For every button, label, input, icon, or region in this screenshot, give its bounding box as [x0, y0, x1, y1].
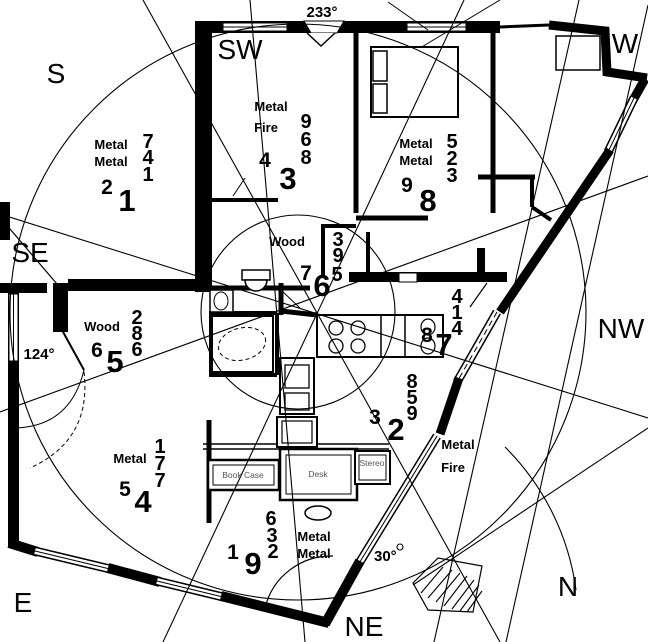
stairs-step-2: [428, 570, 452, 598]
wall-left-upper: [195, 21, 212, 292]
sector-top-right: Metal Metal 5 2 3 9 8: [399, 131, 457, 218]
star-base: 1: [118, 183, 135, 218]
wall-entry-jamb: [53, 283, 68, 332]
compass-w: W: [612, 28, 639, 59]
entry-door-arc-2: [30, 372, 85, 468]
wall-top-thin: [500, 25, 549, 27]
compass-sw: SW: [217, 34, 263, 65]
fridge-door-2: [285, 393, 309, 410]
star-left: 4: [259, 149, 271, 172]
stairs-outline: [413, 558, 482, 612]
compass-e: E: [14, 587, 33, 618]
star-base: 5: [106, 344, 123, 379]
angle-ne: 30°: [374, 548, 397, 565]
stairs-step-3: [436, 573, 460, 602]
element-label: Fire: [441, 460, 465, 475]
star-left: 6: [91, 339, 103, 362]
star-left: 8: [421, 324, 433, 347]
star-stack-3: 4: [451, 318, 463, 340]
wall-wroom-3: [532, 207, 551, 220]
element-label: Fire: [254, 120, 278, 135]
bed-pillow-2: [373, 84, 387, 113]
star-left: 3: [369, 406, 381, 429]
sector-bottom-left: Metal 1 7 7 5 4: [113, 436, 165, 519]
floor-plan-canvas: S SW W SE NW E NE N 233° 124° 30° Metal …: [0, 0, 648, 642]
angle-facing: 233°: [306, 4, 337, 21]
wall-right-3: [440, 378, 459, 434]
star-stack-3: 2: [267, 541, 278, 563]
wall-right-2: [500, 150, 610, 312]
porch-wall-stub: [0, 202, 10, 240]
element-label: Metal: [297, 546, 330, 561]
sector-bottom-right: Metal Fire: [441, 437, 475, 475]
desk-label: Desk: [308, 469, 328, 479]
door-leaf-right: [470, 283, 487, 307]
element-label: Metal: [297, 529, 330, 544]
stove-burner-1: [329, 321, 343, 335]
star-left: 7: [300, 262, 312, 285]
star-stack-3: 3: [446, 165, 457, 187]
sector-center-low: 8 5 9 3 2: [369, 371, 417, 447]
star-stack-3: 7: [154, 470, 165, 492]
stove-burner-4: [351, 339, 365, 353]
sector-mid-left: Wood 2 8 6 6 5: [84, 307, 142, 379]
star-stack-3: 8: [300, 147, 311, 169]
element-label: Metal: [113, 451, 146, 466]
star-base: 7: [435, 327, 452, 362]
star-stack-3: 1: [142, 164, 153, 186]
star-stack-3: 6: [131, 339, 142, 361]
wall-stub-t: [477, 248, 485, 273]
entry-door-leaf: [62, 330, 84, 370]
degree-dot: [397, 544, 403, 550]
compass-n: N: [558, 571, 578, 602]
entry-door-arc: [12, 370, 84, 428]
element-label: Metal: [399, 136, 432, 151]
star-base: 3: [279, 161, 296, 196]
star-left: 9: [401, 174, 413, 197]
element-label: Metal: [94, 154, 127, 169]
star-base: 2: [387, 412, 404, 447]
element-label: Wood: [84, 319, 120, 334]
star-left: 5: [119, 478, 131, 501]
element-label: Metal: [254, 99, 287, 114]
compass-se: SE: [11, 237, 48, 268]
facing-pointer-icon: [307, 33, 335, 46]
toilet-tank: [242, 270, 270, 280]
compass-nw: NW: [598, 313, 645, 344]
star-stack-3: 9: [406, 403, 417, 425]
element-label: Metal: [399, 153, 432, 168]
stairs-step-5: [452, 580, 474, 609]
element-label: Metal: [94, 137, 127, 152]
star-left: 2: [101, 176, 113, 199]
sink: [214, 292, 228, 310]
sector-top-left: Metal Metal 7 4 1 2 1: [94, 131, 154, 218]
element-label: Metal: [441, 437, 474, 452]
outer-arc-extra: [505, 447, 576, 590]
fridge-door-1: [285, 365, 309, 388]
bed-pillow-1: [373, 51, 387, 81]
star-stack-3: 5: [331, 264, 342, 286]
star-base: 8: [419, 183, 436, 218]
wall-bottom-2: [108, 568, 160, 582]
compass-ne: NE: [345, 611, 384, 642]
star-left: 1: [227, 541, 239, 564]
star-base: 9: [244, 546, 261, 581]
bookcase-label: Book Case: [222, 470, 264, 480]
rug: [305, 506, 331, 520]
element-label: Wood: [269, 234, 305, 249]
balcony-window: [556, 36, 600, 70]
angle-entry: 124°: [23, 346, 54, 363]
stairs-icon: [413, 558, 482, 612]
floor-plan: S SW W SE NW E NE N 233° 124° 30° Metal …: [0, 0, 648, 642]
stairs-step-7: [467, 591, 482, 612]
wall-bottom-w1-line: [35, 551, 110, 569]
star-base: 6: [313, 268, 330, 303]
star-base: 4: [134, 484, 152, 519]
stereo-label: Stereo: [359, 458, 384, 468]
compass-s: S: [47, 58, 66, 89]
closet-opening: [399, 273, 417, 282]
